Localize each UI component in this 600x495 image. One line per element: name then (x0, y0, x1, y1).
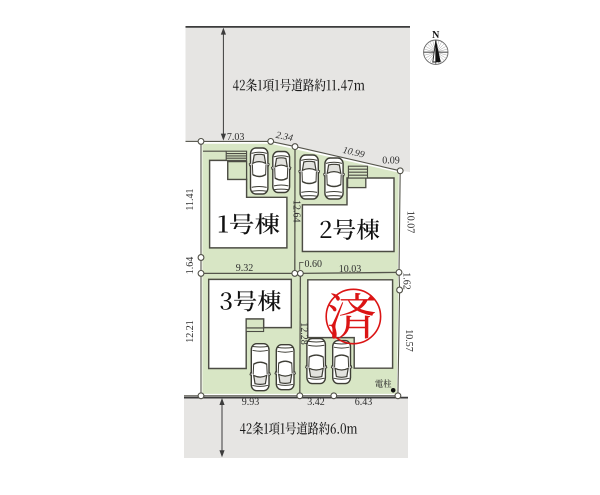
svg-text:1.62: 1.62 (401, 272, 412, 290)
svg-text:12.64: 12.64 (290, 200, 301, 223)
svg-text:0.60: 0.60 (305, 259, 323, 270)
svg-text:12.21: 12.21 (185, 320, 196, 343)
svg-text:3.42: 3.42 (307, 397, 325, 408)
svg-text:9.93: 9.93 (242, 397, 260, 408)
svg-text:0.09: 0.09 (382, 156, 400, 167)
svg-text:6.43: 6.43 (355, 397, 373, 408)
svg-text:10.03: 10.03 (339, 264, 362, 275)
svg-text:12.28: 12.28 (298, 322, 309, 345)
svg-text:7.03: 7.03 (227, 132, 245, 143)
svg-text:11.41: 11.41 (185, 188, 196, 210)
svg-text:1.64: 1.64 (185, 257, 196, 275)
svg-text:N: N (432, 30, 440, 41)
svg-text:9.32: 9.32 (236, 263, 254, 274)
svg-text:10.57: 10.57 (403, 329, 414, 352)
svg-text:10.07: 10.07 (404, 211, 415, 234)
